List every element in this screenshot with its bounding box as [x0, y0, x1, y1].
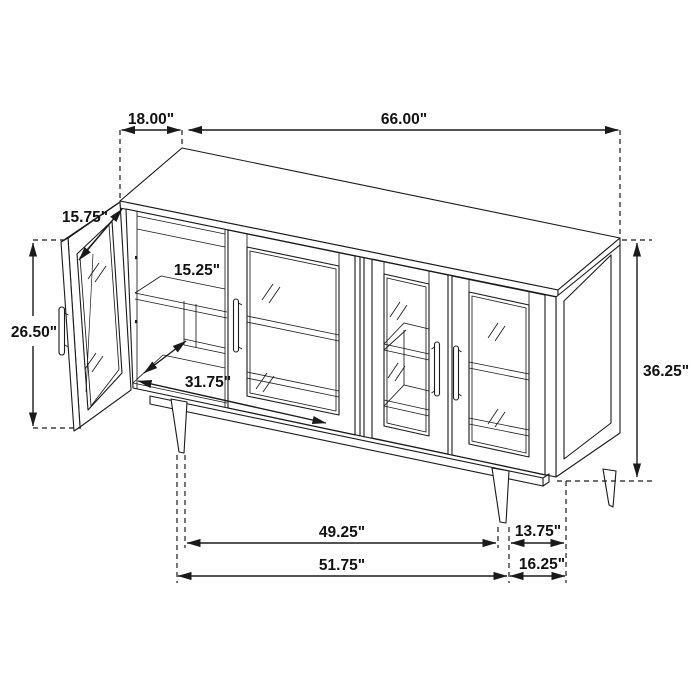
front-left-leg	[171, 399, 187, 453]
door-3-handle	[435, 342, 440, 396]
door-4-handle	[454, 346, 459, 400]
dimension-diagram-svg: 18.00" 66.00" 15.75" 15.25" 26.50" 31.75…	[0, 0, 700, 700]
dim-overall-height-label: 36.25"	[643, 363, 689, 380]
dim-door-width-label: 15.75"	[62, 209, 108, 226]
dim-leg-span-inner-label: 49.25"	[319, 524, 365, 541]
open-glass-door	[59, 202, 131, 431]
dim-leg-inset-right-label: 13.75"	[515, 523, 561, 540]
open-door-handle	[59, 307, 65, 355]
dim-shelf-depth-label: 15.25"	[174, 262, 220, 279]
dim-interior-width-label: 31.75"	[185, 374, 231, 391]
dim-door-height-label: 26.50"	[11, 324, 57, 341]
door-2-handle	[234, 299, 239, 352]
cabinet-drawing	[59, 148, 620, 523]
dim-leg-span-outer-label: 51.75"	[319, 557, 365, 574]
front-right-leg	[492, 468, 509, 523]
rear-right-leg	[603, 469, 616, 507]
dim-top-width-label: 66.00"	[381, 111, 427, 128]
dim-top-depth-label: 18.00"	[128, 111, 174, 128]
diagram-canvas: 18.00" 66.00" 15.75" 15.25" 26.50" 31.75…	[0, 0, 700, 700]
dim-corner-offset-right-label: 16.25"	[519, 556, 565, 573]
